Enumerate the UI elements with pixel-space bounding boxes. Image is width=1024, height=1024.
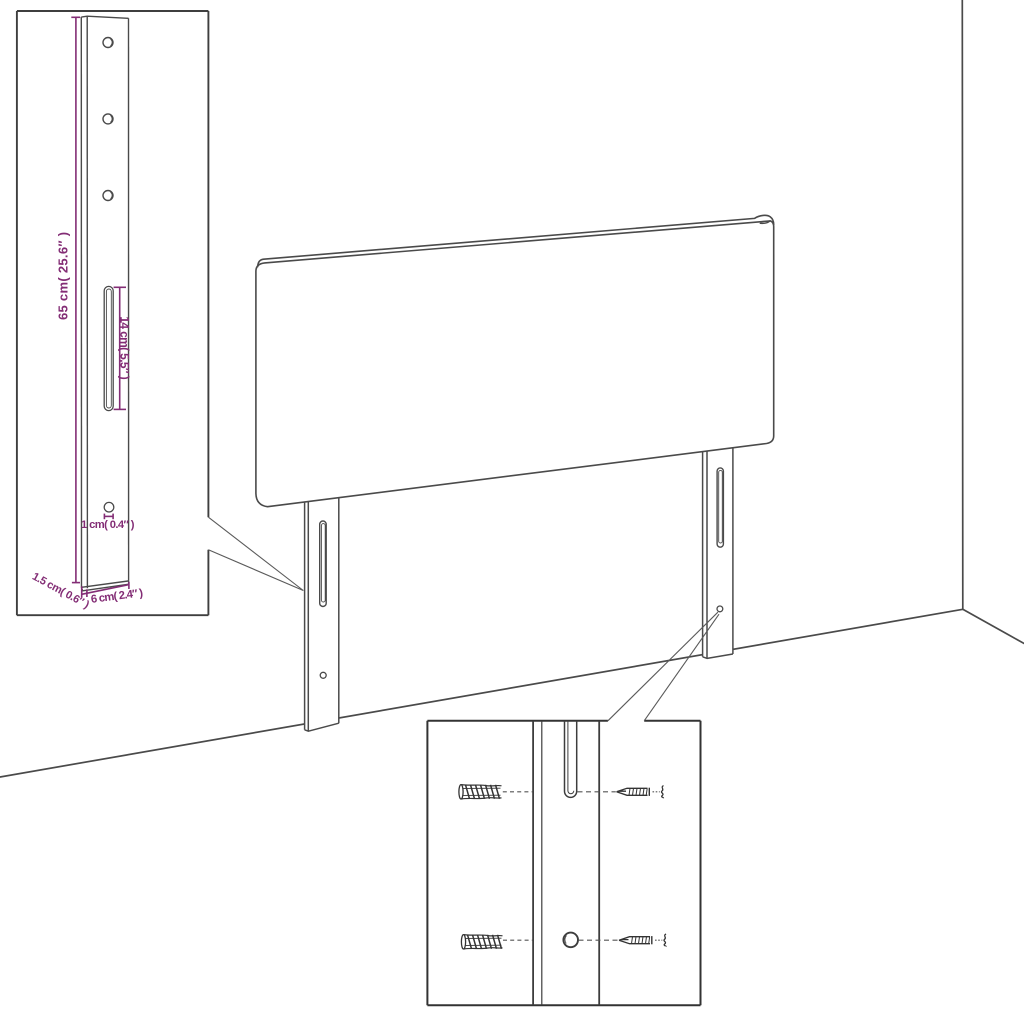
svg-text:14 cm( 5.5″ ): 14 cm( 5.5″ )	[118, 316, 132, 379]
svg-text:1 cm( 0.4″ ): 1 cm( 0.4″ )	[81, 519, 135, 531]
svg-text:65 cm( 25.6″ ): 65 cm( 25.6″ )	[56, 232, 71, 320]
